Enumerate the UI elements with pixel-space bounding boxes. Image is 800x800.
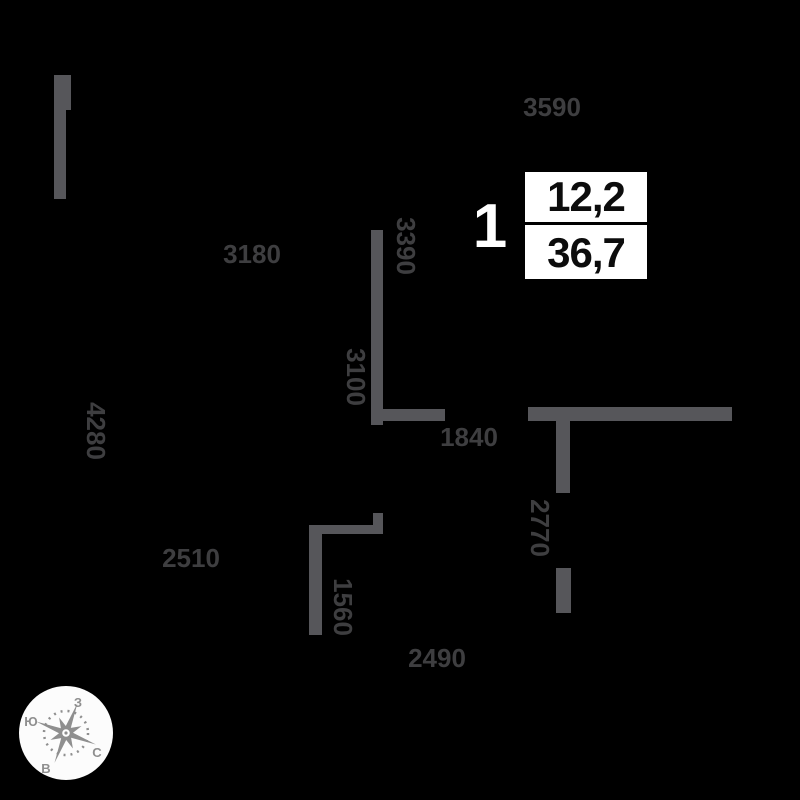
unit-number: 1	[473, 196, 507, 258]
compass-hub-dot	[64, 731, 67, 734]
compass-rose-icon: З Ю С В	[16, 683, 116, 783]
compass-north-label: С	[92, 745, 102, 760]
dimension-label-4280: 4280	[83, 402, 109, 460]
dimension-label-3390: 3390	[393, 217, 419, 275]
wall-right-horizontal	[528, 407, 732, 421]
dimension-label-3590: 3590	[523, 94, 581, 120]
wall-right-vertical-upper	[556, 421, 570, 493]
dimension-label-2510: 2510	[162, 545, 220, 571]
wall-bottom-stub	[373, 513, 383, 534]
wall-top-left-thick	[54, 75, 71, 110]
wall-bottom-horizontal	[309, 525, 383, 534]
wall-right-vertical-lower	[556, 568, 571, 613]
wall-top-left-thin	[54, 110, 66, 199]
dimension-label-2770: 2770	[527, 499, 553, 557]
dimension-label-3100: 3100	[343, 348, 369, 406]
unit-area-box: 12,2 36,7	[525, 172, 647, 279]
compass-west-label: З	[74, 695, 82, 710]
wall-bottom-vertical	[309, 525, 322, 635]
wall-center-vertical	[371, 230, 383, 425]
unit-area-bottom-value: 36,7	[525, 225, 647, 279]
dimension-label-1840: 1840	[440, 424, 498, 450]
dimension-label-2490: 2490	[408, 645, 466, 671]
wall-center-horizontal	[383, 409, 445, 421]
floor-plan-canvas: 3590 3180 3390 3100 4280 1840 2770 2510 …	[0, 0, 800, 800]
compass-east-label: В	[41, 761, 50, 776]
dimension-label-1560: 1560	[330, 578, 356, 636]
compass-south-label: Ю	[24, 714, 37, 729]
dimension-label-3180: 3180	[223, 241, 281, 267]
unit-area-top-value: 12,2	[525, 172, 647, 222]
